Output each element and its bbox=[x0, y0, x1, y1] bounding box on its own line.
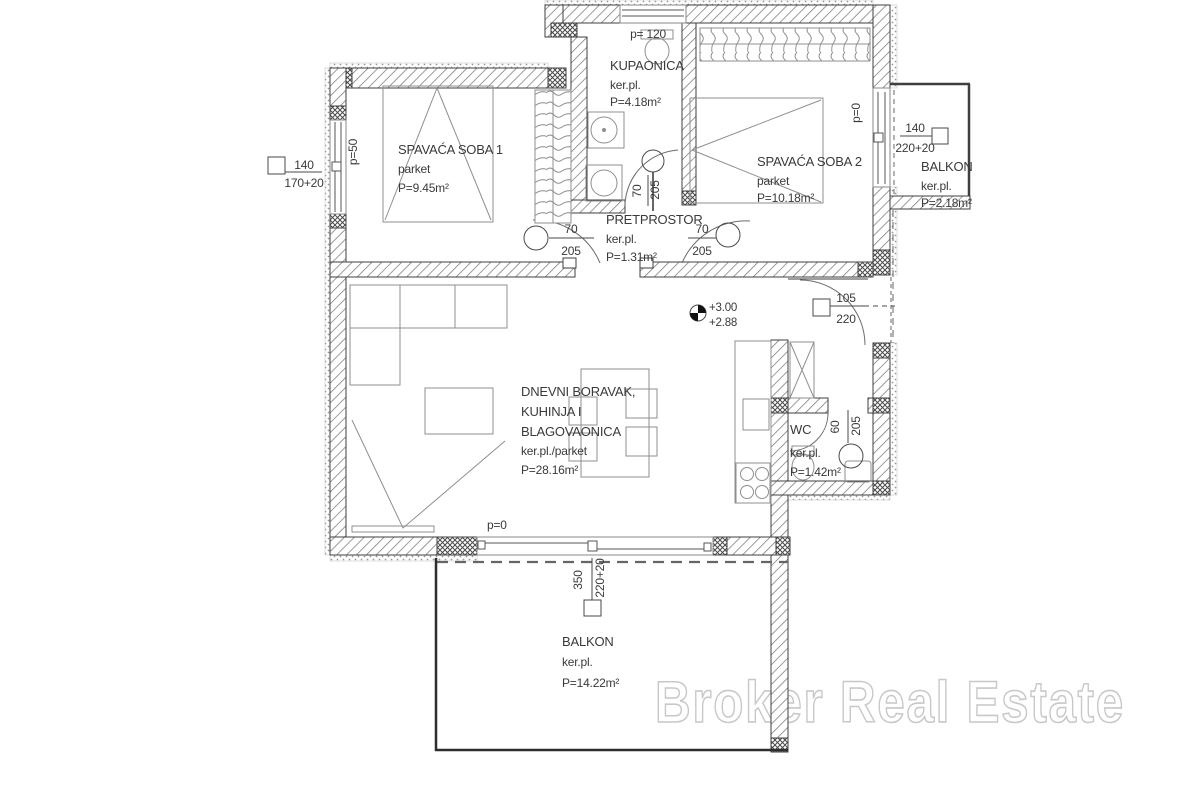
corner-block bbox=[873, 398, 890, 413]
dim-door-bedroom2-height: 205 bbox=[692, 244, 712, 258]
dim-window-left-width: 140 bbox=[294, 158, 314, 172]
wall-segment bbox=[571, 37, 587, 200]
kitchen-sink bbox=[743, 399, 769, 430]
corner-block bbox=[330, 214, 346, 228]
dim-square-window-bottom bbox=[584, 600, 601, 616]
wall-segment bbox=[682, 23, 696, 205]
dim-window-bottom-parapet: p=0 bbox=[487, 518, 507, 532]
door-threshold bbox=[563, 258, 576, 268]
corner-block bbox=[873, 250, 890, 275]
washing-machine-drum bbox=[591, 170, 617, 196]
window-bottom-mullion bbox=[478, 541, 485, 549]
wall-segment bbox=[873, 5, 890, 88]
stove-burner bbox=[741, 468, 754, 481]
corner-block bbox=[873, 481, 890, 495]
insulation-strip bbox=[330, 63, 548, 68]
tv-view-lines bbox=[352, 420, 505, 528]
dim-window-bottom-height: 220+20 bbox=[593, 558, 607, 598]
kitchen-counter bbox=[735, 341, 771, 503]
wall-segment bbox=[771, 340, 788, 555]
dim-square-entry bbox=[813, 299, 830, 316]
window-left-handle bbox=[332, 162, 341, 171]
label-hallway-name: PRETPROSTOR bbox=[606, 212, 703, 227]
dim-window-right-parapet: p=0 bbox=[849, 103, 863, 123]
corner-block bbox=[771, 398, 788, 413]
dim-door-bedroom1-height: 205 bbox=[561, 244, 581, 258]
corner-block bbox=[873, 343, 890, 358]
label-living-area: P=28.16m² bbox=[521, 463, 578, 477]
bathroom-sink-drain bbox=[603, 129, 606, 132]
insulation-strip bbox=[325, 68, 330, 555]
label-bedroom2-name: SPAVAĆA SOBA 2 bbox=[757, 154, 862, 169]
floor-plan-drawing: Broker Real Estate bbox=[0, 0, 1200, 800]
label-bedroom2-area: P=10.18m² bbox=[757, 191, 814, 205]
corner-block bbox=[713, 537, 727, 555]
dim-bubble-bathroom-door bbox=[642, 150, 664, 172]
stove-burner bbox=[741, 486, 754, 499]
dim-door-wc-height: 205 bbox=[849, 416, 863, 436]
corner-block bbox=[437, 537, 477, 555]
wall-segment bbox=[640, 262, 873, 277]
bed-bedroom2-line bbox=[692, 100, 821, 150]
insulation-strip bbox=[890, 5, 897, 88]
label-living-name1: DNEVNI BORAVAK, bbox=[521, 384, 635, 399]
level-lower-label: +2.88 bbox=[709, 317, 737, 329]
window-top-frame bbox=[620, 5, 686, 23]
level-marker-quadrant bbox=[698, 305, 706, 313]
dim-window-bottom-width: 350 bbox=[571, 570, 585, 590]
watermark-text: Broker Real Estate bbox=[655, 670, 1125, 735]
dim-bubble-wc-door bbox=[839, 444, 863, 468]
label-living-name2: KUHINJA I bbox=[521, 404, 581, 419]
label-bedroom1-floor: parket bbox=[398, 162, 431, 176]
dim-door-entry-height: 220 bbox=[836, 312, 856, 326]
label-bedroom1-area: P=9.45m² bbox=[398, 181, 449, 195]
wall-segment bbox=[330, 68, 548, 88]
corner-block bbox=[551, 23, 577, 37]
label-bedroom1-name: SPAVAĆA SOBA 1 bbox=[398, 142, 503, 157]
label-bathroom-name: KUPAONICA bbox=[610, 58, 684, 73]
coffee-table bbox=[425, 388, 493, 434]
label-wc-floor: ker.pl. bbox=[790, 446, 821, 460]
insulation-strip bbox=[545, 0, 873, 5]
dim-door-bedroom1-width: 70 bbox=[565, 222, 578, 236]
dim-door-bathroom-width: 70 bbox=[630, 184, 644, 197]
dining-chair bbox=[626, 427, 657, 456]
window-bottom-mullion bbox=[588, 541, 597, 551]
label-balcony-right-area: P=2.18m² bbox=[921, 196, 972, 210]
dim-window-top-parapet: p= 120 bbox=[630, 27, 666, 41]
label-wc-area: P=1.42m² bbox=[790, 465, 841, 479]
wc-sink bbox=[845, 461, 871, 482]
wall-segment bbox=[788, 398, 828, 413]
level-marker-quadrant bbox=[690, 313, 698, 321]
label-hallway-area: P=1.31m² bbox=[606, 250, 657, 264]
wall-segment bbox=[686, 5, 873, 23]
dim-door-bedroom2-width: 70 bbox=[696, 222, 709, 236]
dim-window-left-parapet: p=50 bbox=[346, 138, 360, 165]
dim-door-wc-width: 60 bbox=[828, 420, 842, 433]
wall-segment bbox=[330, 262, 575, 277]
label-wc-name: WC bbox=[790, 422, 811, 437]
label-bathroom-area: P=4.18m² bbox=[610, 95, 661, 109]
labels: SPAVAĆA SOBA 1 parket P=9.45m² KUPAONICA… bbox=[284, 27, 972, 690]
dim-bubble-bedroom1-door bbox=[524, 226, 548, 250]
floor-plan-page: Broker Real Estate bbox=[0, 0, 1200, 800]
wall-segment bbox=[771, 481, 890, 495]
window-right-handle bbox=[874, 133, 883, 142]
level-upper-label: +3.00 bbox=[709, 302, 737, 314]
label-hallway-floor: ker.pl. bbox=[606, 232, 637, 246]
wall-segment bbox=[771, 555, 788, 738]
window-bottom-mullion bbox=[704, 543, 711, 551]
dim-square-window-left bbox=[268, 157, 285, 174]
corner-block bbox=[548, 68, 566, 88]
dim-window-left-height: 170+20 bbox=[284, 176, 324, 190]
label-bathroom-floor: ker.pl. bbox=[610, 78, 641, 92]
label-living-floor: ker.pl./parket bbox=[521, 444, 588, 458]
label-bedroom2-floor: parket bbox=[757, 174, 790, 188]
tv-board bbox=[352, 526, 434, 532]
corner-block bbox=[330, 106, 346, 120]
dim-window-right-height: 220+20 bbox=[895, 141, 935, 155]
insulation-strip bbox=[771, 495, 890, 500]
corner-block bbox=[776, 537, 790, 555]
corner-block bbox=[858, 262, 873, 277]
insulation-strip bbox=[330, 555, 477, 561]
stove-burner bbox=[756, 486, 769, 499]
label-balcony-bottom-area: P=14.22m² bbox=[562, 676, 619, 690]
dim-door-entry-width: 105 bbox=[836, 291, 856, 305]
insulation-strip bbox=[890, 343, 897, 495]
stove-burner bbox=[756, 468, 769, 481]
sofa bbox=[350, 285, 507, 385]
label-balcony-bottom-name: BALKON bbox=[562, 634, 614, 649]
dim-bubble-bedroom2-door bbox=[716, 223, 740, 247]
dim-door-bathroom-height: 205 bbox=[648, 180, 662, 200]
label-balcony-bottom-floor: ker.pl. bbox=[562, 655, 593, 669]
wall-segment bbox=[868, 398, 873, 413]
label-living-name3: BLAGOVAONICA bbox=[521, 424, 621, 439]
dim-window-right-width: 140 bbox=[905, 121, 925, 135]
label-balcony-right-name: BALKON bbox=[921, 159, 973, 174]
kitchen-stove bbox=[736, 463, 770, 503]
label-balcony-right-floor: ker.pl. bbox=[921, 179, 952, 193]
